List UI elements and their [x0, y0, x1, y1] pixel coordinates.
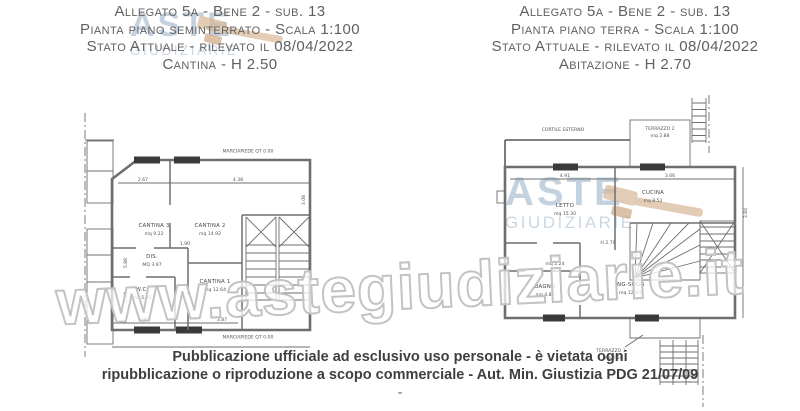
right-header-survey-date: Stato Attuale - rilevato il 08/04/2022	[460, 38, 790, 56]
left-header-use-height: Cantina - H 2.50	[55, 56, 385, 74]
left-header-attachment: Allegato 5a - Bene 2 - sub. 13	[55, 3, 385, 21]
room-label-letto: LETTO	[556, 203, 574, 209]
dim-top-1: 2.67	[138, 177, 148, 183]
publication-notice-line2: ripubblicazione o riproduzione a scopo c…	[0, 366, 800, 384]
room-label-cantina2: CANTINA 2	[194, 223, 225, 229]
room-label-cortile: CORTILE ESTERNO	[542, 127, 585, 133]
dim-top-2: 4.38	[233, 177, 243, 183]
publication-notice-line3: -	[0, 384, 800, 402]
room-label-terrazzo2: TERRAZZO 2	[644, 126, 674, 132]
room-label-cantina3: CANTINA 3	[138, 223, 169, 229]
dim-right-vertical: 3.84	[743, 208, 749, 218]
publication-notice: Pubblicazione ufficiale ad esclusivo uso…	[0, 348, 800, 402]
left-sheet-header: Allegato 5a - Bene 2 - sub. 13 Pianta pi…	[55, 3, 385, 73]
sidewalk-label-top: MARCIAPIEDE QT 0.00	[223, 149, 274, 155]
dim-right-vertical: 3.08	[301, 195, 307, 205]
dim-top-2: 3.66	[665, 173, 675, 179]
left-header-survey-date: Stato Attuale - rilevato il 08/04/2022	[55, 38, 385, 56]
right-sheet-header: Allegato 5a - Bene 2 - sub. 13 Pianta pi…	[460, 3, 790, 73]
scanned-floorplan-page: ASTE GIUDIZIARIE ASTE GIUDIZIARIE Allega…	[0, 0, 800, 411]
right-header-plan-title: Pianta piano terra - Scala 1:100	[460, 21, 790, 39]
right-header-use-height: Abitazione - H 2.70	[460, 56, 790, 74]
terrace1-outline	[625, 318, 700, 347]
external-stairs-top	[692, 98, 706, 143]
room-label-cucina: CUCINA	[642, 190, 664, 196]
dim-top-1: 4.91	[560, 173, 570, 179]
publication-notice-line1: Pubblicazione ufficiale ad esclusivo uso…	[0, 348, 800, 366]
room-area-cantina3: mq 9.22	[144, 231, 163, 237]
room-label-dis: DIS.	[146, 254, 158, 260]
room-area-letto: mq 15.30	[554, 211, 576, 217]
room-area-terrazzo2: mq 2.88	[650, 133, 669, 139]
dim-mid: 1.90	[180, 241, 190, 247]
right-header-attachment: Allegato 5a - Bene 2 - sub. 13	[460, 3, 790, 21]
sidewalk-label-bottom: MARCIAPIEDE QT 0.00	[223, 335, 274, 341]
room-area-cantina2: mq 14.92	[199, 231, 221, 237]
left-header-plan-title: Pianta piano seminterrato - Scala 1:100	[55, 21, 385, 39]
room-area-cucina: mq 8.52	[643, 198, 662, 204]
